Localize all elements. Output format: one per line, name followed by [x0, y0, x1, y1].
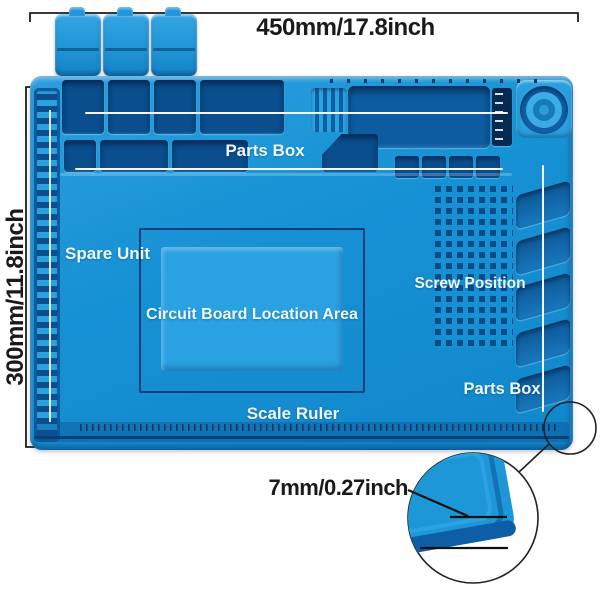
thickness-detail-graphic [0, 0, 600, 600]
soldering-mat-diagram: 450mm/17.8inch 300mm/11.8inch [0, 0, 600, 600]
